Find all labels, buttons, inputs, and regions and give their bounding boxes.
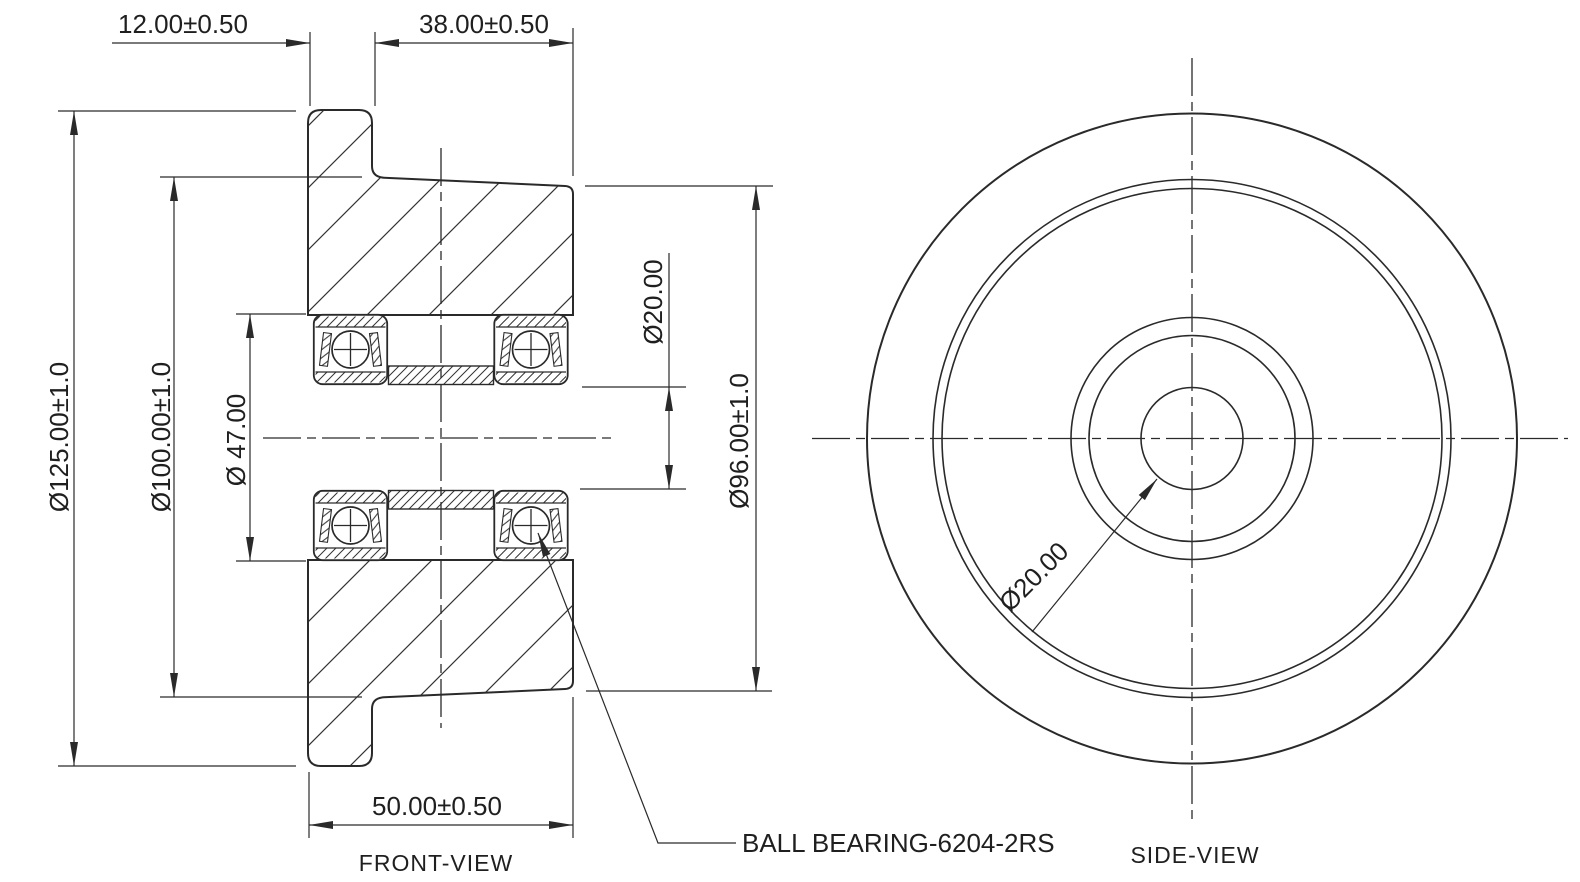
- dim-major-diameter-label: Ø100.00±1.0: [146, 362, 176, 512]
- side-centerlines: [812, 58, 1568, 822]
- dim-bore-diameter-side: Ø20.00: [993, 479, 1157, 632]
- side-view-label: SIDE-VIEW: [1130, 842, 1259, 868]
- dim-bore-diameter-front-label: Ø20.00: [638, 259, 668, 344]
- dim-outer-diameter-label: Ø125.00±1.0: [44, 362, 74, 512]
- bearing-section-bottom-right: [494, 491, 567, 560]
- dim-flange-width: 12.00±0.50: [112, 9, 375, 106]
- technical-drawing-canvas: 12.00±0.50 38.00±0.50 Ø125.00±1.0 Ø100.0…: [0, 0, 1580, 882]
- dim-bearing-seat-diameter-label: Ø 47.00: [221, 394, 251, 487]
- bearing-section-top-left: [314, 315, 387, 384]
- bearing-section-bottom-left: [314, 491, 387, 560]
- front-view: 12.00±0.50 38.00±0.50 Ø125.00±1.0 Ø100.0…: [44, 9, 1055, 876]
- front-view-label: FRONT-VIEW: [359, 850, 513, 876]
- dim-minor-diameter: Ø96.00±1.0: [585, 186, 773, 691]
- dim-hub-width-label: 38.00±0.50: [419, 9, 549, 39]
- dim-flange-width-label: 12.00±0.50: [118, 9, 248, 39]
- bearing-callout-label: BALL BEARING-6204-2RS: [742, 828, 1055, 858]
- bearing-section-top-right: [494, 315, 567, 384]
- drawing-sheet: 12.00±0.50 38.00±0.50 Ø125.00±1.0 Ø100.0…: [0, 0, 1580, 882]
- dim-overall-width-label: 50.00±0.50: [372, 791, 502, 821]
- dim-hub-width: 38.00±0.50: [375, 9, 573, 176]
- side-view: Ø20.00 SIDE-VIEW: [812, 58, 1568, 868]
- dim-bore-diameter-side-label: Ø20.00: [993, 536, 1075, 618]
- dim-minor-diameter-label: Ø96.00±1.0: [724, 373, 754, 509]
- dim-bore-diameter-front: Ø20.00: [580, 253, 686, 489]
